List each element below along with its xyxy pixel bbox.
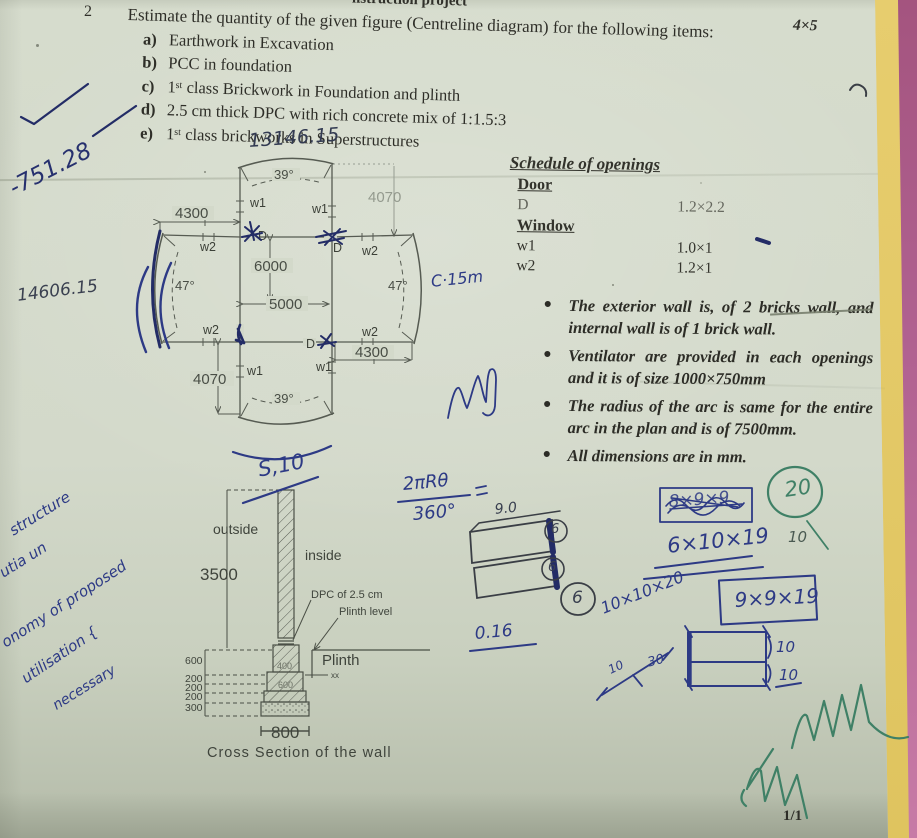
notes-list: ●The exterior wall is, of 2 bricks wall,… [542,295,873,475]
calc-9x9x19: 9×9×19 [734,584,820,612]
svg-text:DPC of 2.5 cm: DPC of 2.5 cm [311,589,383,601]
svg-text:D: D [306,337,315,351]
bullet-icon: ● [542,444,567,466]
circled-value: 6 [572,588,583,608]
question-number: 2 [84,3,92,21]
paper-speck [612,284,614,286]
circled-value: 6 [551,522,559,537]
svg-text:47°: 47° [175,278,195,293]
svg-text:xx: xx [331,671,339,680]
svg-text:w2: w2 [361,325,378,339]
svg-text:39°: 39° [274,391,294,406]
cross-section-diagram: outside 3500 inside DPC of 2.5 cm Plinth… [175,478,445,768]
svg-text:inside: inside [305,547,342,563]
svg-text:5000: 5000 [269,296,302,313]
formula-denominator: 360° [412,500,457,525]
svg-text:w1: w1 [246,364,263,378]
svg-text:Plinth level: Plinth level [339,606,392,618]
svg-text:300: 300 [185,702,203,714]
scanned-exam-page: nstruction project 2 4×5 Estimate the qu… [0,0,917,838]
svg-text:w1: w1 [249,196,266,210]
bullet-icon: ● [543,295,568,339]
sketch-top-dim: 9.0 [494,500,518,518]
marks-badge: 4×5 [793,17,818,36]
paper-speck [36,44,39,47]
bullet-icon: ● [543,395,568,439]
window-row: w11.0×1 [517,237,725,258]
svg-text:Cross Section of the wall: Cross Section of the wall [207,745,392,761]
note-bullet: ●The radius of the arc is same for the e… [543,395,873,441]
svg-text:3500: 3500 [200,565,238,584]
svg-text:w2: w2 [361,244,378,258]
window-heading: Window [517,217,725,238]
schedule-of-openings: Schedule of openings Door D1.2×2.2 Windo… [508,153,725,278]
svg-text:w2: w2 [199,240,216,254]
marks-awarded-circled: 20 [783,474,813,501]
page-number: 1/1 [783,808,802,825]
svg-text:4070: 4070 [368,189,401,206]
svg-text:4300: 4300 [355,344,388,361]
window-row: w21.2×1 [516,257,724,278]
svg-text:w2: w2 [202,323,219,337]
note-bullet: ●The exterior wall is, of 2 bricks wall,… [543,295,873,341]
scribbled-calc: 8×9×9 [668,488,730,512]
svg-text:D: D [333,241,342,255]
svg-text:outside: outside [213,521,258,537]
centreline-plan-diagram: 4300 4070 6000 5000 4070 4300 39° 39° 47… [140,128,500,458]
svg-text:600: 600 [278,680,293,690]
circled-value: 6 [548,560,556,575]
svg-text:Plinth: Plinth [322,652,360,669]
svg-text:600: 600 [185,655,203,667]
svg-text:800: 800 [271,723,299,742]
svg-text:D: D [258,229,267,243]
calc-side-10: 10 [788,528,807,546]
svg-text:w1: w1 [311,202,328,216]
bullet-icon: ● [543,345,568,389]
schedule-title: Schedule of openings [510,153,726,176]
note-bullet: ●Ventilator are provided in each opening… [543,345,873,391]
note-bullet: ●All dimensions are in mm. [542,444,872,468]
rect-dim-10: 10 [776,638,795,656]
rect-dim-10: 10 [779,666,798,684]
svg-text:47°: 47° [388,278,408,293]
svg-text:w1: w1 [315,360,332,374]
svg-text:6000: 6000 [254,258,287,275]
svg-text:4300: 4300 [175,205,208,222]
door-heading: Door [517,176,725,197]
door-row: D1.2×2.2 [517,196,725,217]
svg-text:39°: 39° [274,167,294,182]
svg-text:400: 400 [277,661,292,671]
value-016: 0.16 [474,621,513,644]
formula-numerator: 2πRθ [402,470,449,495]
svg-text:4070: 4070 [193,371,226,388]
